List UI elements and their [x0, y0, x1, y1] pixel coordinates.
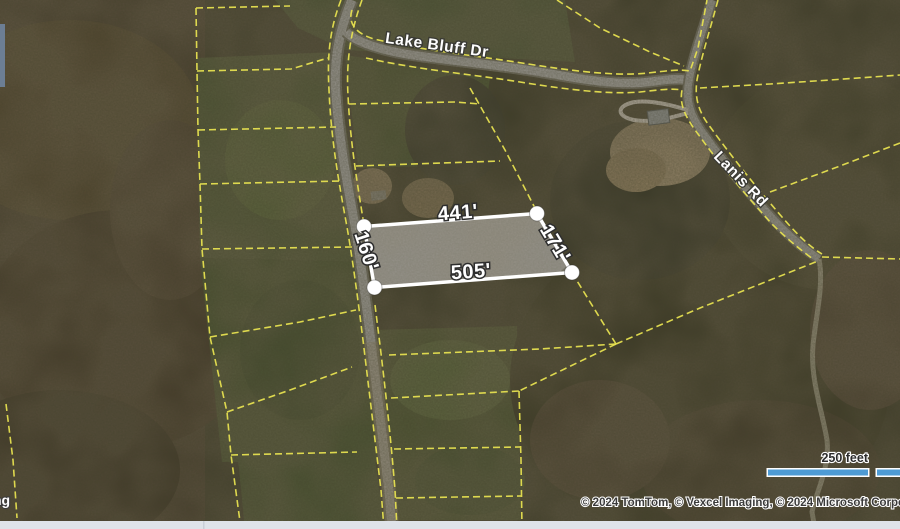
aerial-map-canvas[interactable]: 441' 171' 505' 160' Lake Bluff Dr Lanis …: [0, 0, 900, 529]
watermark-fragment: ng: [0, 492, 10, 508]
dimension-label-top: 441': [437, 200, 479, 225]
bottom-strip-divider: [203, 521, 205, 529]
map-viewport[interactable]: 441' 171' 505' 160' Lake Bluff Dr Lanis …: [0, 0, 900, 529]
dimension-label-bottom: 505': [450, 260, 492, 285]
map-attribution: © 2024 TomTom, © Vexcel Imaging, © 2024 …: [581, 497, 900, 509]
scale-bar-label: 250 feet: [821, 451, 868, 465]
bottom-page-strip: [0, 521, 900, 529]
left-edge-ui-fragment: [0, 24, 5, 87]
